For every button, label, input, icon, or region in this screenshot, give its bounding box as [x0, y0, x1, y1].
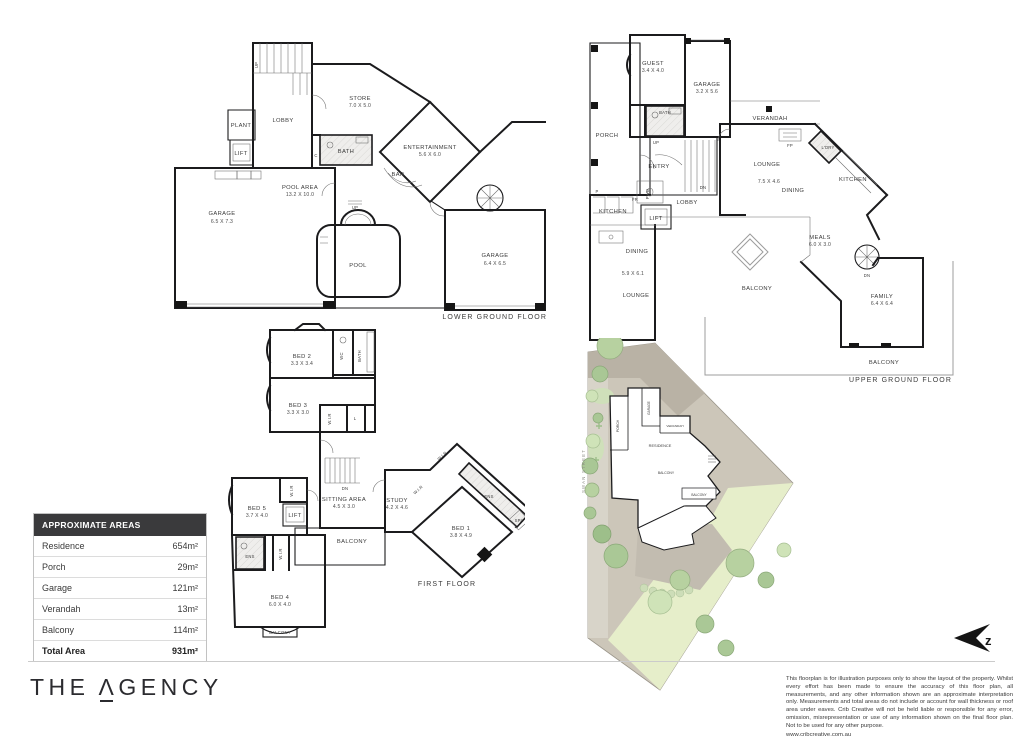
room-label-dining-left: DINING	[626, 249, 649, 255]
room-dims-lounge-right: 7.5 X 4.6	[758, 179, 780, 185]
street-label: SWAN STREET	[581, 449, 586, 493]
upper-ground-floorplan: PORCH GUEST 3.4 X 4.0 GARAGE 3.2 X 5.6 B…	[585, 25, 1015, 390]
stairs-dn-label: DN	[342, 486, 348, 491]
room-label-verandah: VERANDAH	[752, 116, 787, 122]
room-label-garage2: GARAGE	[482, 253, 509, 259]
room-label-wir-study: W.I.R	[412, 484, 424, 495]
spiral-dn-label: DN	[864, 273, 870, 278]
room-label-entry: ENTRY	[648, 164, 669, 170]
logo-gency: GENCY	[118, 674, 222, 700]
room-label-study: STUDY	[386, 498, 407, 504]
room-dims-garage: 3.2 X 5.6	[696, 89, 718, 95]
room-dims-family: 6.4 X 6.4	[871, 301, 893, 307]
logo-a-glyph: Λ	[99, 674, 119, 701]
room-label-kitchen-left: KITCHEN	[599, 209, 627, 215]
room-label-lift: LIFT	[288, 513, 301, 519]
room-label-bed5: BED 5	[248, 506, 267, 512]
room-label-spa: SPA	[515, 518, 524, 523]
room-dims-sitting: 4.5 X 3.0	[333, 504, 355, 510]
disclaimer-website: www.cribcreative.com.au	[786, 732, 1013, 740]
area-value: 121m²	[172, 583, 198, 593]
ug-walls	[590, 35, 953, 375]
room-label-balcony-bottom: BALCONY	[269, 630, 290, 635]
room-label-family: FAMILY	[871, 294, 893, 300]
room-dims-store: 7.0 X 5.0	[349, 103, 371, 109]
room-label-sitting: SITTING AREA	[322, 497, 366, 503]
room-label-wir-bed4: W.I.R	[278, 548, 283, 559]
room-label-kitchen-right: KITCHEN	[839, 177, 867, 183]
table-row: Porch 29m²	[34, 556, 206, 577]
room-label-guest: GUEST	[642, 61, 664, 67]
room-label-pool: POOL	[349, 263, 367, 269]
disclaimer-text: This floorplan is for illustration purpo…	[786, 676, 1013, 730]
room-label-store: STORE	[349, 96, 371, 102]
room-dims-garage1: 6.5 X 7.3	[211, 219, 233, 225]
ff-walls	[229, 324, 525, 637]
north-arrow: z	[952, 622, 1000, 662]
first-floorplan: BED 2 3.3 X 3.4 WC BATH BED 3 3.3 X 3.0 …	[225, 320, 525, 652]
area-label: Verandah	[42, 604, 81, 614]
area-label: Balcony	[42, 625, 74, 635]
room-label-lobby: LOBBY	[676, 200, 697, 206]
room-label-balcony-mid: BALCONY	[742, 286, 772, 292]
room-label-dining-right: DINING	[782, 188, 805, 194]
room-dims-study: 4.2 X 4.6	[386, 505, 408, 511]
area-value: 654m²	[172, 541, 198, 551]
room-label-bar: BAR	[392, 172, 405, 178]
lower-ground-floorplan: UP LOBBY PLANT LIFT STORE 7.0 X 5.0 BATH…	[160, 25, 560, 325]
floor-caption-first: FIRST FLOOR	[418, 581, 476, 588]
room-label-bath: BATH	[659, 110, 671, 115]
floorplan-page: { "areas_table": { "header": "APPROXIMAT…	[0, 0, 1024, 723]
lg-walls	[175, 43, 545, 310]
room-label-bath: BATH	[357, 350, 362, 362]
room-label-lounge-right: LOUNGE	[754, 162, 781, 168]
room-label-bed3: BED 3	[289, 403, 308, 409]
total-area-value: 931m²	[172, 646, 198, 656]
site-label-verandah: VERANDAH	[666, 424, 683, 428]
room-label-balcony-bottom: BALCONY	[869, 360, 899, 366]
floor-caption-upper-ground: UPPER GROUND FLOOR	[849, 377, 952, 384]
room-label-lift: LIFT	[649, 216, 662, 222]
area-value: 29m²	[177, 562, 198, 572]
upper-ground-svg: PORCH GUEST 3.4 X 4.0 GARAGE 3.2 X 5.6 B…	[585, 25, 1015, 390]
site-label-balcony-a: BALCONY	[658, 471, 675, 475]
table-row: Balcony 114m²	[34, 619, 206, 640]
room-label-wir-bed3: W.I.R	[327, 413, 332, 424]
site-label-residence: RESIDENCE	[649, 443, 672, 448]
fridge-label: FR	[632, 197, 638, 202]
site-label-balcony-b: BALCONY	[691, 493, 707, 497]
room-dims-bed2: 3.3 X 3.4	[291, 361, 313, 367]
area-label: Garage	[42, 583, 72, 593]
room-label-bed2: BED 2	[293, 354, 312, 360]
north-arrow-icon: z	[952, 622, 1000, 662]
room-label-plant: PLANT	[231, 123, 252, 129]
room-dims-pool-area: 13.2 X 10.0	[286, 192, 314, 198]
room-label-laundry: L'DRY	[822, 145, 835, 150]
room-label-garage1: GARAGE	[209, 211, 236, 217]
areas-table-header: APPROXIMATE AREAS	[34, 514, 206, 536]
agency-logo: THEΛGENCY	[30, 674, 223, 701]
room-label-ens-bed5: ENS	[245, 554, 254, 559]
area-label: Residence	[42, 541, 85, 551]
room-dims-entertainment: 5.6 X 6.0	[419, 152, 441, 158]
room-label-garage: GARAGE	[694, 82, 721, 88]
room-dims-bed5: 3.7 X 4.0	[246, 513, 268, 519]
north-arrow-letter: z	[985, 633, 992, 648]
stairs-up-label: UP	[254, 62, 259, 68]
stairs-dn-label: DN	[700, 185, 706, 190]
table-row: Residence 654m²	[34, 536, 206, 556]
area-value: 114m²	[173, 625, 198, 635]
stairs-up-label: UP	[653, 140, 659, 145]
room-label-meals: MEALS	[809, 235, 830, 241]
cupboard-label: C	[314, 153, 317, 158]
room-label-lounge-left: LOUNGE	[623, 293, 650, 299]
disclaimer: This floorplan is for illustration purpo…	[786, 676, 1013, 740]
room-label-bed1: BED 1	[452, 526, 471, 532]
site-plan: SWAN STREET PORCH GARAGE VERANDAH RESIDE…	[580, 338, 795, 693]
footer-divider	[28, 661, 995, 662]
table-row: Garage 121m²	[34, 577, 206, 598]
fireplace-label: FP	[787, 143, 793, 148]
room-label-entertainment: ENTERTAINMENT	[403, 145, 456, 151]
pantry-label: P	[596, 189, 599, 194]
room-dims-meals: 6.0 X 3.0	[809, 242, 831, 248]
approximate-areas-table: APPROXIMATE AREAS Residence 654m² Porch …	[33, 513, 207, 662]
first-floor-svg: BED 2 3.3 X 3.4 WC BATH BED 3 3.3 X 3.0 …	[225, 320, 525, 652]
logo-the: THE	[30, 674, 90, 700]
room-label-pool-area: POOL AREA	[282, 185, 318, 191]
table-row-total: Total Area 931m²	[34, 640, 206, 661]
site-plan-svg: SWAN STREET PORCH GARAGE VERANDAH RESIDE…	[580, 338, 795, 693]
room-label-bath: BATH	[338, 149, 354, 155]
area-label: Porch	[42, 562, 66, 572]
lower-ground-svg: UP LOBBY PLANT LIFT STORE 7.0 X 5.0 BATH…	[160, 25, 560, 325]
room-dims-bed3: 3.3 X 3.0	[287, 410, 309, 416]
powder-label: PWD	[645, 189, 650, 199]
pool-up-label: UP	[352, 205, 358, 210]
room-label-wc: WC	[339, 352, 344, 359]
total-area-label: Total Area	[42, 646, 85, 656]
room-label-bed4: BED 4	[271, 595, 290, 601]
room-label-wir-bed5: W.I.R	[289, 485, 294, 496]
room-dims-bed1: 3.8 X 4.9	[450, 533, 472, 539]
room-dims-bed4: 6.0 X 4.0	[269, 602, 291, 608]
room-label-balcony-mid: BALCONY	[337, 539, 367, 545]
table-row: Verandah 13m²	[34, 598, 206, 619]
room-label-lobby: LOBBY	[272, 118, 293, 124]
room-label-porch: PORCH	[596, 133, 619, 139]
area-value: 13m²	[177, 604, 198, 614]
room-dims-dining-left: 5.9 X 6.1	[622, 271, 644, 277]
room-label-ens-bed1: ENS	[484, 494, 493, 499]
room-label-linen: L	[354, 416, 357, 421]
room-dims-guest: 3.4 X 4.0	[642, 68, 664, 74]
site-label-garage: GARAGE	[647, 401, 651, 415]
room-dims-garage2: 6.4 X 6.5	[484, 261, 506, 267]
room-label-lift: LIFT	[234, 151, 247, 157]
site-label-porch: PORCH	[616, 419, 620, 432]
